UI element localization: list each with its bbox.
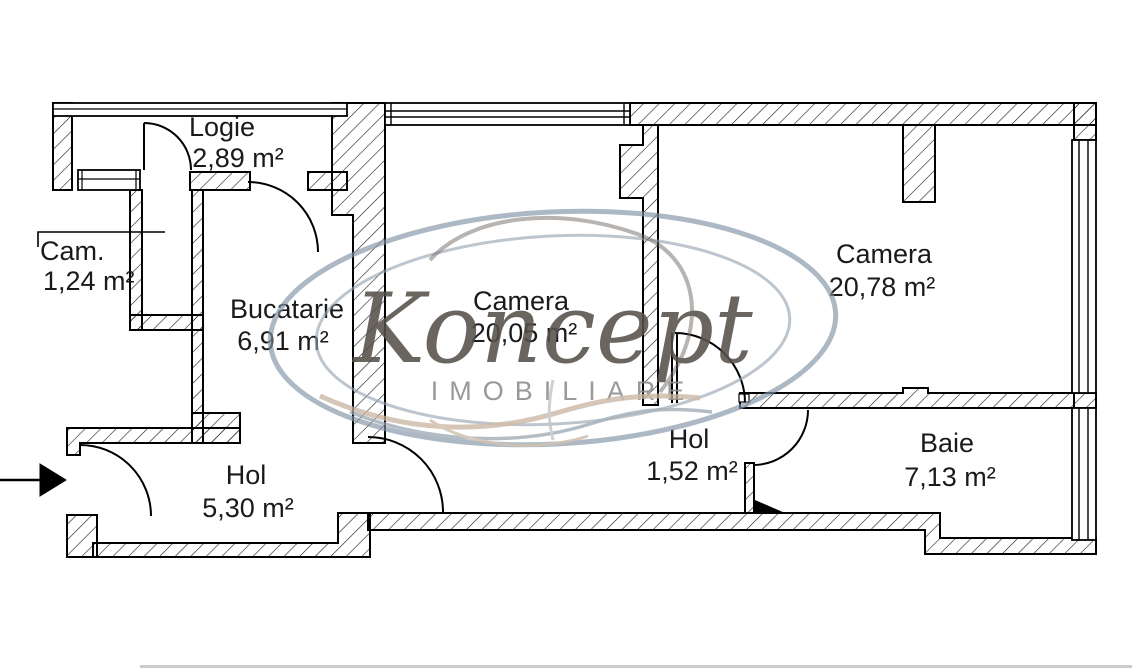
room-area-cam: 1,24 m²: [43, 266, 135, 296]
door-hall-camera: [368, 437, 443, 512]
wall-top: [630, 103, 1096, 125]
door-hall-bath: [753, 410, 808, 465]
right-window-bath: [1072, 408, 1096, 540]
watermark-tagline: IMOBILIARE: [431, 376, 696, 406]
logie-window: [78, 170, 140, 190]
door-swing-marker: [755, 500, 785, 513]
wall-kitchen-left: [192, 190, 203, 443]
entrance-arrow-icon: [0, 464, 66, 496]
door-logie-closet: [144, 123, 191, 170]
room-label-cam: Cam.: [40, 236, 105, 266]
door-entrance: [80, 445, 151, 516]
wall-bottom-band: [368, 513, 1096, 554]
room-label-logie: Logie: [189, 112, 255, 142]
wall-hall-top: [67, 428, 240, 455]
right-window-camera: [1072, 140, 1096, 393]
room-area-logie: 2,89 m²: [192, 143, 284, 173]
door-logie-kitchen: [248, 182, 318, 252]
watermark-brand: Koncept: [351, 273, 753, 385]
wall-bath-top: [740, 388, 1074, 408]
floor-plan-page: Logie 2,89 m² Cam. 1,24 m² Bucatarie 6,9…: [0, 0, 1132, 670]
wall-logie-bottom-b: [308, 172, 347, 190]
floor-plan-drawing: Logie 2,89 m² Cam. 1,24 m² Bucatarie 6,9…: [0, 0, 1132, 670]
wall-right-top-corner: [1074, 103, 1096, 140]
room-label-camera-2: Camera: [836, 239, 933, 269]
room-area-camera-2: 20,78 m²: [829, 272, 936, 302]
watermark: Koncept IMOBILIARE: [264, 197, 841, 458]
bottom-divider: [140, 665, 1132, 668]
room-area-hol-2: 1,52 m²: [646, 456, 738, 486]
room-area-baie: 7,13 m²: [904, 462, 996, 492]
wall-logie-bottom-a: [190, 172, 250, 190]
room-area-hol-1: 5,30 m²: [202, 493, 294, 523]
room-label-baie: Baie: [920, 428, 974, 458]
room-label-hol-1: Hol: [226, 460, 267, 490]
wall-top-pillar: [903, 125, 935, 202]
wall-closet-left: [130, 190, 142, 330]
wall-right-divider: [1074, 393, 1096, 408]
wall-bath-stub: [745, 463, 754, 513]
camera-top-window: [385, 103, 630, 125]
